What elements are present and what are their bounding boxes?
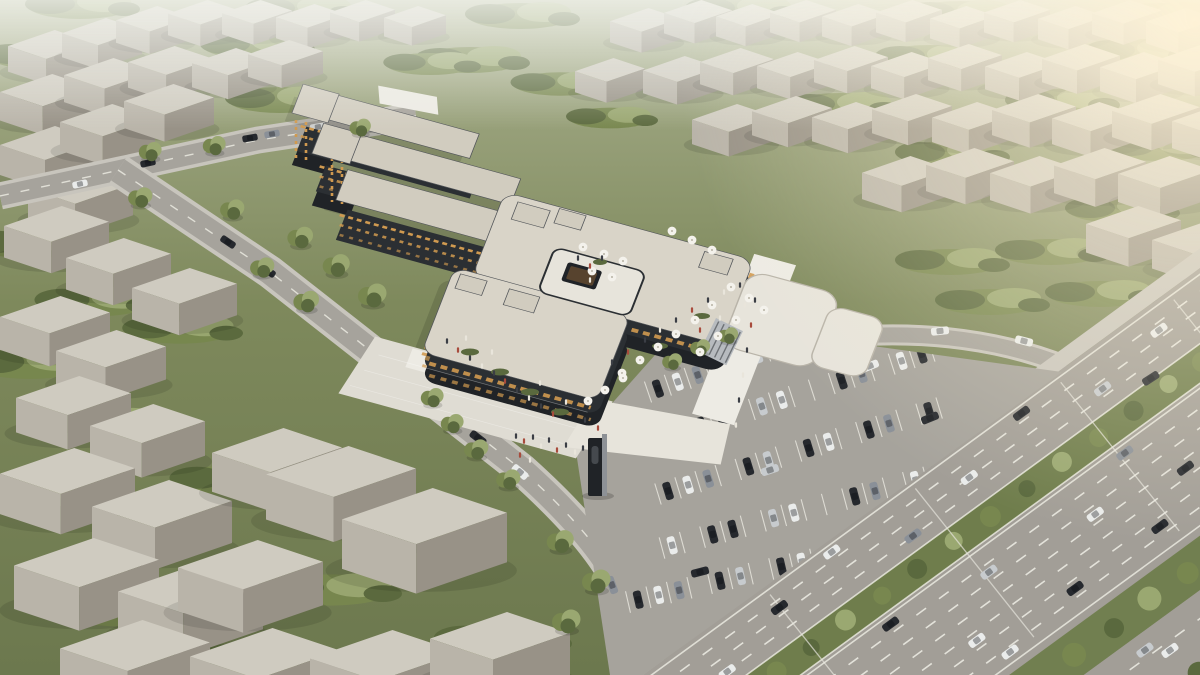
render-canvas: Aerial architectural rendering of a mixe… [0,0,1200,675]
architectural-rendering: Aerial architectural rendering of a mixe… [0,0,1200,675]
sun-glare [0,0,1200,675]
